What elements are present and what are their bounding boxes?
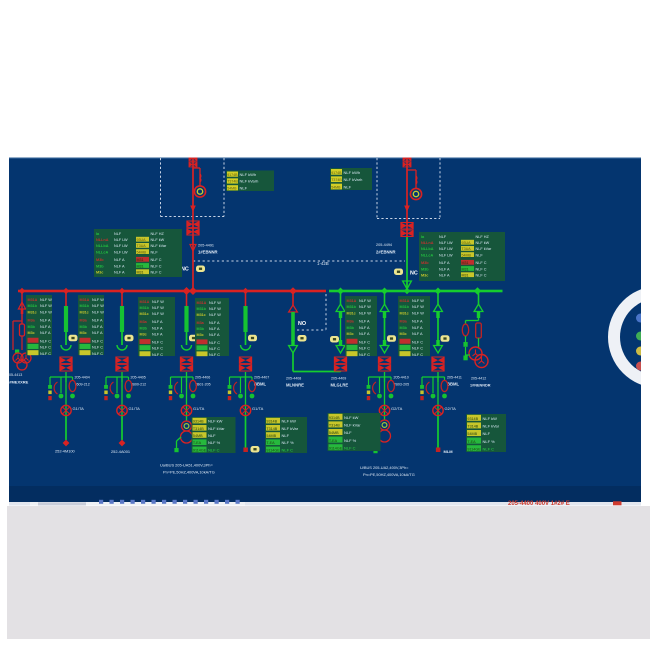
- svg-text:9314B: 9314B: [266, 420, 277, 424]
- svg-text:NLF A: NLF A: [412, 332, 423, 336]
- svg-text:M31: M31: [462, 267, 469, 271]
- svg-text:252-4A001: 252-4A001: [111, 449, 130, 454]
- svg-text:NLF LW: NLF LW: [439, 241, 453, 245]
- svg-text:NLF A: NLF A: [152, 332, 163, 336]
- svg-text:MLGLRE: MLGLRE: [331, 383, 349, 388]
- svg-text:NLF %: NLF %: [282, 440, 295, 445]
- svg-text:NLF A: NLF A: [152, 320, 163, 324]
- svg-text:205-4408: 205-4408: [286, 377, 301, 381]
- svg-text:NLF C: NLF C: [151, 264, 162, 268]
- svg-text:9314B: 9314B: [467, 417, 478, 421]
- svg-text:NLF W: NLF W: [359, 311, 371, 315]
- svg-text:NLF LW: NLF LW: [439, 253, 453, 257]
- svg-text:NLF %: NLF %: [208, 440, 221, 445]
- svg-text:M31A: M31A: [400, 299, 410, 303]
- svg-text:NLF W: NLF W: [92, 298, 104, 302]
- svg-text:NLF LW: NLF LW: [114, 250, 128, 254]
- svg-text:NLF W: NLF W: [412, 311, 424, 315]
- svg-text:NLF C: NLF C: [209, 353, 220, 357]
- svg-text:M31: M31: [462, 261, 469, 265]
- svg-text:NLF: NLF: [208, 433, 216, 438]
- svg-text:M3c: M3c: [421, 274, 428, 278]
- svg-text:NLF C: NLF C: [208, 447, 220, 452]
- svg-text:NLF W: NLF W: [359, 305, 371, 309]
- svg-text:M3b: M3b: [421, 267, 429, 271]
- svg-text:205-4412: 205-4412: [471, 377, 486, 381]
- svg-text:NLF C: NLF C: [412, 353, 423, 357]
- svg-text:NLF C: NLF C: [412, 347, 423, 351]
- svg-text:7B01-205: 7B01-205: [195, 383, 211, 387]
- svg-text:NLLcA: NLLcA: [421, 253, 433, 257]
- svg-text:BBML: BBML: [447, 382, 460, 387]
- svg-text:NLF A: NLF A: [412, 326, 423, 330]
- svg-text:NLF kW: NLF kW: [208, 419, 223, 424]
- svg-text:NLF A: NLF A: [92, 331, 103, 335]
- svg-text:NLF kVarh: NLF kVarh: [344, 177, 363, 182]
- svg-text:NLF A: NLF A: [439, 274, 450, 278]
- svg-text:9114GE: 9114GE: [266, 448, 280, 452]
- svg-text:NLF C: NLF C: [40, 352, 51, 356]
- svg-text:NLF C: NLF C: [92, 352, 103, 356]
- svg-text:M31c: M31c: [28, 310, 37, 314]
- svg-text:NLF A: NLF A: [209, 321, 220, 325]
- svg-text:NLF A: NLF A: [40, 331, 51, 335]
- svg-text:NLF kW: NLF kW: [344, 415, 359, 420]
- svg-text:NLF A: NLF A: [114, 271, 125, 275]
- svg-text:MLNNRE: MLNNRE: [286, 383, 304, 388]
- svg-text:205-4411: 205-4411: [447, 376, 462, 380]
- svg-text:9174B: 9174B: [227, 173, 238, 177]
- svg-text:NLF A: NLF A: [359, 326, 370, 330]
- svg-text:M3a: M3a: [28, 319, 36, 323]
- svg-text:NLF W: NLF W: [359, 299, 371, 303]
- svg-text:NLF W: NLF W: [209, 307, 221, 311]
- svg-text:M31A: M31A: [140, 300, 150, 304]
- svg-text:M3b: M3b: [140, 326, 148, 330]
- svg-text:NLF kVar: NLF kVar: [344, 423, 361, 428]
- svg-text:M31b: M31b: [28, 304, 38, 308]
- svg-text:54MB: 54MB: [227, 187, 237, 191]
- svg-text:54MB: 54MB: [467, 432, 477, 436]
- svg-text:NLF kW: NLF kW: [282, 419, 297, 424]
- svg-text:NLF kVar: NLF kVar: [282, 426, 299, 431]
- svg-text:NLF C: NLF C: [92, 346, 103, 350]
- svg-text:NLF C: NLF C: [152, 341, 163, 345]
- svg-text:M3b: M3b: [421, 261, 429, 265]
- svg-text:54MB: 54MB: [193, 434, 203, 438]
- svg-text:NLF: NLF: [114, 232, 122, 236]
- svg-text:NLF: NLF: [282, 433, 290, 438]
- svg-text:1-42B: 1-42B: [317, 261, 329, 266]
- svg-text:M3c: M3c: [347, 332, 354, 336]
- svg-text:1#NENNDR: 1#NENNDR: [470, 384, 491, 388]
- svg-text:252-4M100: 252-4M100: [55, 449, 76, 454]
- svg-text:T314B: T314B: [467, 425, 478, 429]
- svg-text:NLF A: NLF A: [359, 320, 370, 324]
- svg-text:M31b: M31b: [140, 306, 150, 310]
- svg-text:M31A: M31A: [347, 299, 357, 303]
- svg-text:M31A: M31A: [197, 301, 207, 305]
- svg-text:M3c: M3c: [197, 333, 204, 337]
- svg-text:NLF A: NLF A: [114, 258, 125, 262]
- svg-text:205-4407: 205-4407: [254, 376, 269, 380]
- svg-text:T-EA: T-EA: [467, 440, 476, 444]
- svg-text:T-EA: T-EA: [266, 441, 275, 445]
- svg-text:NLF C: NLF C: [152, 353, 163, 357]
- svg-text:NLF W: NLF W: [92, 304, 104, 308]
- svg-text:G1/TA: G1/TA: [73, 406, 85, 411]
- svg-text:M3b: M3b: [96, 264, 104, 268]
- svg-text:NLF C: NLF C: [359, 347, 370, 351]
- svg-text:NLF C: NLF C: [151, 258, 162, 262]
- svg-text:M3a: M3a: [140, 320, 148, 324]
- svg-text:205-4405: 205-4405: [131, 376, 146, 380]
- svg-text:NLF W: NLF W: [412, 305, 424, 309]
- svg-text:NLLnA: NLLnA: [421, 241, 434, 245]
- svg-text:NC: NC: [410, 271, 418, 277]
- svg-text:NLF C: NLF C: [476, 261, 487, 265]
- svg-text:G2/TA: G2/TA: [445, 406, 457, 411]
- svg-text:54MB: 54MB: [266, 434, 276, 438]
- svg-text:9114GE: 9114GE: [467, 447, 481, 451]
- svg-text:NLF C: NLF C: [483, 446, 495, 451]
- svg-text:M31c: M31c: [400, 311, 409, 315]
- svg-text:NLF W: NLF W: [209, 301, 221, 305]
- svg-text:93UA: 93UA: [137, 238, 147, 242]
- svg-text:NLF HZ: NLF HZ: [151, 232, 165, 236]
- svg-text:NLF HZ: NLF HZ: [476, 235, 490, 239]
- svg-text:NLF kVar: NLF kVar: [476, 247, 492, 251]
- svg-text:M31b: M31b: [197, 307, 207, 311]
- svg-text:G2/TA: G2/TA: [391, 406, 403, 411]
- svg-text:T-EA: T-EA: [329, 439, 338, 443]
- svg-text:NLF kVar: NLF kVar: [151, 244, 167, 248]
- svg-text:205-4413: 205-4413: [7, 373, 22, 377]
- svg-text:M3b: M3b: [28, 325, 36, 329]
- svg-text:M31c: M31c: [197, 313, 206, 317]
- svg-text:M3b: M3b: [347, 326, 355, 330]
- svg-text:M31b: M31b: [347, 305, 357, 309]
- svg-text:7609-212: 7609-212: [75, 383, 90, 387]
- svg-text:NLF C: NLF C: [40, 346, 51, 350]
- svg-text:NLF LW: NLF LW: [439, 247, 453, 251]
- svg-text:M31c: M31c: [80, 310, 89, 314]
- svg-text:7B03-205: 7B03-205: [394, 383, 410, 387]
- svg-text:M3c: M3c: [28, 331, 35, 335]
- svg-text:NLF: NLF: [151, 250, 159, 254]
- svg-text:205-4406: 205-4406: [195, 376, 210, 380]
- svg-text:9314B: 9314B: [329, 416, 340, 420]
- svg-text:NLF: NLF: [344, 185, 352, 190]
- svg-text:MLM: MLM: [444, 449, 454, 454]
- svg-text:T314B: T314B: [193, 427, 204, 431]
- svg-text:NLF W: NLF W: [40, 304, 52, 308]
- svg-text:NLF W: NLF W: [40, 310, 52, 314]
- svg-text:9114GE: 9114GE: [329, 446, 343, 450]
- svg-text:7B00-212: 7B00-212: [131, 383, 147, 387]
- svg-text:M31b: M31b: [400, 305, 410, 309]
- svg-text:Ua/BUS 205-UA51,400V,3Ph=: Ua/BUS 205-UA51,400V,3Ph=: [160, 463, 213, 468]
- svg-text:NO: NO: [298, 321, 306, 327]
- svg-text:205-4494: 205-4494: [376, 243, 392, 247]
- svg-text:Pn=PE,50HZ,400VA,10kA/TG: Pn=PE,50HZ,400VA,10kA/TG: [163, 470, 215, 475]
- svg-text:NLF: NLF: [476, 253, 484, 257]
- svg-text:54MB: 54MB: [462, 253, 472, 257]
- svg-text:NLF A: NLF A: [92, 325, 103, 329]
- svg-text:M3c: M3c: [80, 331, 87, 335]
- svg-text:1#MEXXRE: 1#MEXXRE: [7, 380, 29, 385]
- svg-text:NLF kVar: NLF kVar: [208, 426, 225, 431]
- svg-text:NLF kVar: NLF kVar: [483, 424, 500, 429]
- svg-text:T374B: T374B: [227, 180, 238, 184]
- svg-text:M31c: M31c: [140, 312, 149, 316]
- svg-text:NLF C: NLF C: [344, 445, 356, 450]
- svg-text:NLF A: NLF A: [439, 267, 450, 271]
- svg-text:T314B: T314B: [266, 427, 277, 431]
- svg-text:NLF C: NLF C: [282, 447, 294, 452]
- svg-text:NLF A: NLF A: [92, 319, 103, 323]
- svg-text:NLF C: NLF C: [209, 341, 220, 345]
- svg-text:T374B: T374B: [331, 178, 342, 182]
- svg-text:NLF A: NLF A: [40, 319, 51, 323]
- svg-text:NLF W: NLF W: [152, 300, 164, 304]
- svg-text:NLF A: NLF A: [152, 326, 163, 330]
- svg-text:NLF C: NLF C: [412, 340, 423, 344]
- svg-text:M3c: M3c: [400, 332, 407, 336]
- svg-text:NLF W: NLF W: [152, 306, 164, 310]
- svg-text:NLF C: NLF C: [476, 267, 487, 271]
- svg-text:NLF C: NLF C: [209, 347, 220, 351]
- svg-text:NLF C: NLF C: [92, 339, 103, 343]
- svg-text:G1/TA: G1/TA: [129, 406, 141, 411]
- svg-text:NLF A: NLF A: [209, 333, 220, 337]
- svg-text:NLF A: NLF A: [412, 320, 423, 324]
- svg-text:M31c: M31c: [347, 311, 356, 315]
- svg-text:NLF C: NLF C: [152, 347, 163, 351]
- svg-text:54MB: 54MB: [137, 250, 147, 254]
- svg-text:NLF %: NLF %: [344, 438, 357, 443]
- svg-text:NLF kWh: NLF kWh: [344, 170, 361, 175]
- svg-text:M3a: M3a: [347, 320, 355, 324]
- svg-text:9314B: 9314B: [193, 420, 204, 424]
- svg-text:NLF A: NLF A: [209, 327, 220, 331]
- svg-text:NLF kVarh: NLF kVarh: [240, 179, 259, 184]
- svg-text:1#EBNNR: 1#EBNNR: [198, 250, 218, 255]
- svg-text:NLLbA: NLLbA: [96, 244, 109, 248]
- svg-text:NLF W: NLF W: [92, 310, 104, 314]
- svg-text:9114GE: 9114GE: [193, 448, 207, 452]
- svg-text:NLF W: NLF W: [209, 313, 221, 317]
- svg-text:NLF W: NLF W: [412, 299, 424, 303]
- svg-text:M3b: M3b: [400, 326, 408, 330]
- svg-text:M3c: M3c: [96, 271, 103, 275]
- svg-text:T3UA: T3UA: [462, 247, 472, 251]
- svg-text:M31: M31: [137, 271, 144, 275]
- svg-text:9174B: 9174B: [331, 171, 342, 175]
- svg-text:NLF: NLF: [344, 430, 352, 435]
- svg-text:NLF: NLF: [483, 431, 491, 436]
- svg-text:NLF C: NLF C: [359, 353, 370, 357]
- svg-text:M31A: M31A: [28, 298, 38, 302]
- svg-text:205-4410: 205-4410: [394, 376, 409, 380]
- svg-text:93UA: 93UA: [462, 241, 472, 245]
- svg-text:NLF A: NLF A: [40, 325, 51, 329]
- svg-text:M31A: M31A: [80, 298, 90, 302]
- svg-text:G1/TA: G1/TA: [193, 406, 205, 411]
- svg-text:T-EA: T-EA: [193, 441, 202, 445]
- svg-text:NLF LW: NLF LW: [114, 244, 128, 248]
- svg-text:NLF W: NLF W: [40, 298, 52, 302]
- svg-text:T314B: T314B: [329, 424, 340, 428]
- svg-text:205-4491: 205-4491: [198, 244, 214, 248]
- svg-text:G1/TA: G1/TA: [252, 406, 264, 411]
- svg-text:NLLcA: NLLcA: [96, 250, 108, 254]
- svg-text:NLF A: NLF A: [359, 332, 370, 336]
- svg-text:NLF kWh: NLF kWh: [240, 172, 257, 177]
- svg-text:T3UA: T3UA: [137, 244, 147, 248]
- svg-text:U/BUS 205-UA2,400V,3Ph=: U/BUS 205-UA2,400V,3Ph=: [360, 465, 409, 470]
- svg-text:NC: NC: [181, 267, 189, 273]
- svg-text:NLF C: NLF C: [40, 339, 51, 343]
- svg-text:M3a: M3a: [197, 321, 205, 325]
- svg-text:NLF C: NLF C: [151, 271, 162, 275]
- svg-text:M31: M31: [137, 258, 144, 262]
- svg-text:NLF kW: NLF kW: [476, 241, 490, 245]
- svg-text:M3a: M3a: [400, 320, 408, 324]
- svg-text:NLF %: NLF %: [483, 439, 496, 444]
- svg-text:205-4409: 205-4409: [331, 377, 346, 381]
- svg-text:M31: M31: [137, 264, 144, 268]
- svg-text:M3b: M3b: [197, 327, 205, 331]
- svg-text:M3b: M3b: [96, 258, 104, 262]
- svg-text:NLF kW: NLF kW: [151, 238, 165, 242]
- svg-text:NLF A: NLF A: [439, 261, 450, 265]
- svg-text:NLF: NLF: [439, 235, 447, 239]
- svg-text:Pn=PE,50HZ,400VA,10kA/TG: Pn=PE,50HZ,400VA,10kA/TG: [363, 472, 415, 477]
- svg-text:M31b: M31b: [80, 304, 90, 308]
- svg-text:M3a: M3a: [80, 319, 88, 323]
- svg-text:NLLnA: NLLnA: [96, 238, 109, 242]
- svg-text:NLLbA: NLLbA: [421, 247, 434, 251]
- svg-text:M31: M31: [462, 274, 469, 278]
- svg-text:54MB: 54MB: [329, 431, 339, 435]
- svg-text:M3c: M3c: [140, 332, 147, 336]
- svg-text:NLF W: NLF W: [152, 312, 164, 316]
- svg-text:NLF: NLF: [240, 186, 248, 191]
- svg-text:NLF C: NLF C: [359, 340, 370, 344]
- svg-text:NLF LW: NLF LW: [114, 238, 128, 242]
- svg-text:NLF kW: NLF kW: [483, 416, 498, 421]
- svg-text:M3b: M3b: [80, 325, 88, 329]
- svg-text:2#EBNNR: 2#EBNNR: [376, 250, 396, 255]
- svg-text:205-4404: 205-4404: [75, 376, 90, 380]
- svg-text:54MB: 54MB: [331, 186, 341, 190]
- svg-text:NLF A: NLF A: [114, 264, 125, 268]
- svg-text:NLF C: NLF C: [476, 274, 487, 278]
